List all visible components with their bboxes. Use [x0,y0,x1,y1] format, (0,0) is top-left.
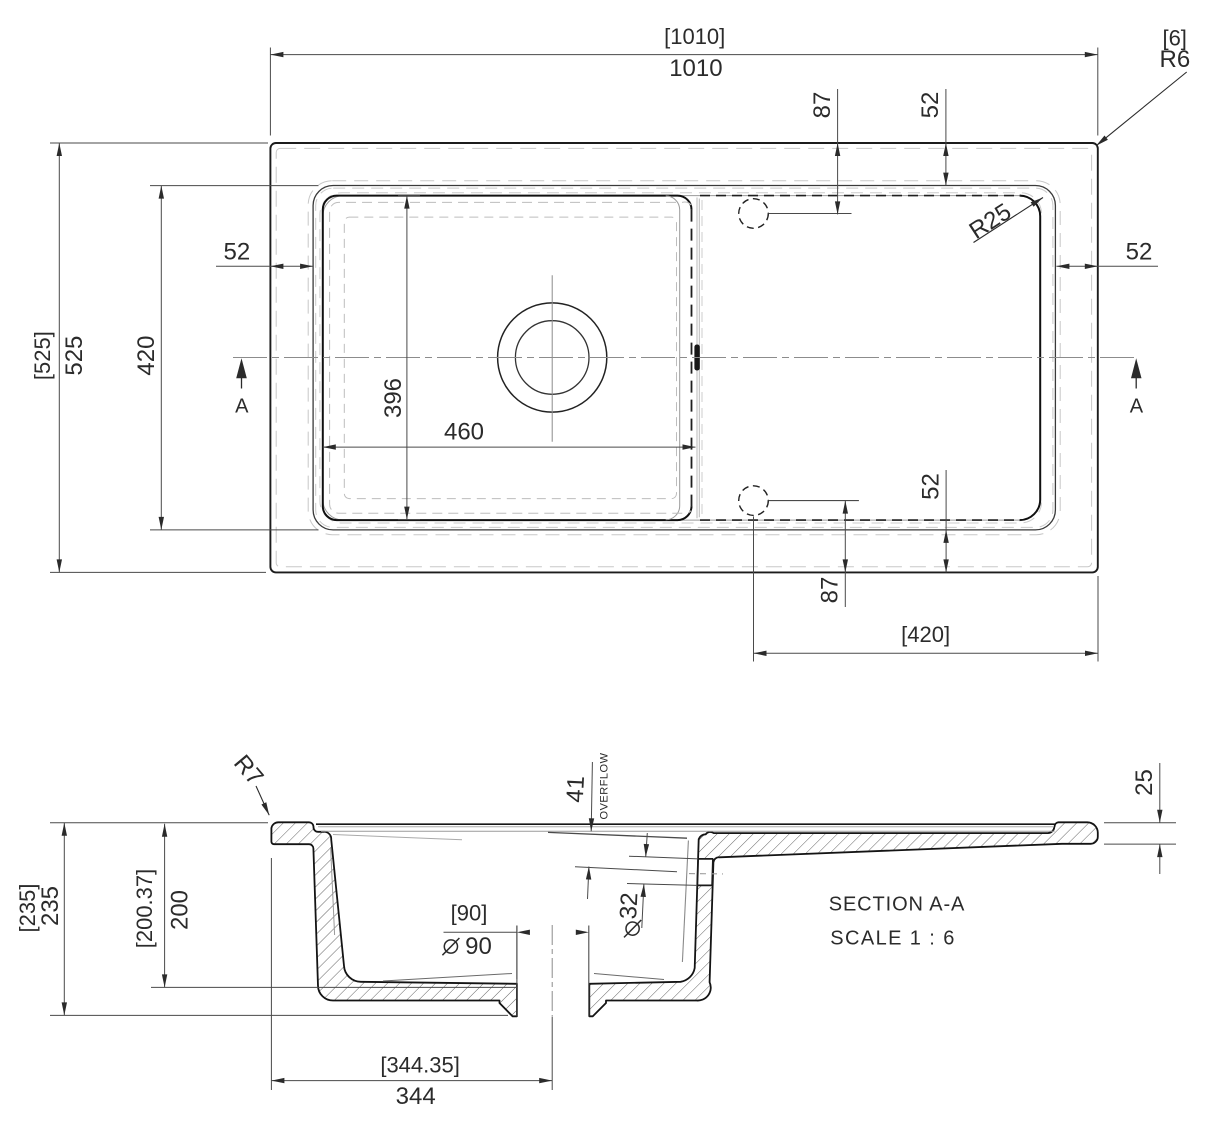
svg-text:[200.37]: [200.37] [132,869,157,949]
svg-text:A: A [1130,395,1144,417]
svg-text:41: 41 [562,775,590,803]
svg-text:[420]: [420] [901,622,950,647]
svg-text:R6: R6 [1160,46,1191,73]
svg-text:235: 235 [37,886,64,926]
svg-text:52: 52 [917,92,944,119]
svg-text:SECTION A-A: SECTION A-A [829,893,966,915]
svg-text:420: 420 [133,336,160,376]
svg-text:396: 396 [380,378,407,418]
svg-text:OVERFLOW: OVERFLOW [598,752,610,819]
svg-text:52: 52 [1126,239,1153,266]
svg-text:A: A [235,395,249,417]
svg-text:[344.35]: [344.35] [380,1053,460,1078]
svg-text:1010: 1010 [669,55,722,82]
svg-text:87: 87 [817,577,844,604]
svg-text:[1010]: [1010] [664,24,725,49]
svg-text:87: 87 [809,92,836,119]
svg-text:25: 25 [1131,769,1158,796]
svg-text:52: 52 [917,473,944,500]
svg-text:344: 344 [396,1083,436,1110]
svg-text:[525]: [525] [30,331,55,380]
svg-text:52: 52 [224,239,251,266]
svg-text:32: 32 [615,892,643,920]
svg-text:SCALE 1 : 6: SCALE 1 : 6 [830,927,955,949]
svg-text:90: 90 [465,933,492,960]
svg-text:[90]: [90] [451,900,488,925]
svg-text:R7: R7 [228,750,268,791]
svg-text:200: 200 [166,890,193,930]
svg-text:R25: R25 [965,198,1017,245]
svg-text:525: 525 [61,336,88,376]
svg-text:460: 460 [444,419,484,446]
